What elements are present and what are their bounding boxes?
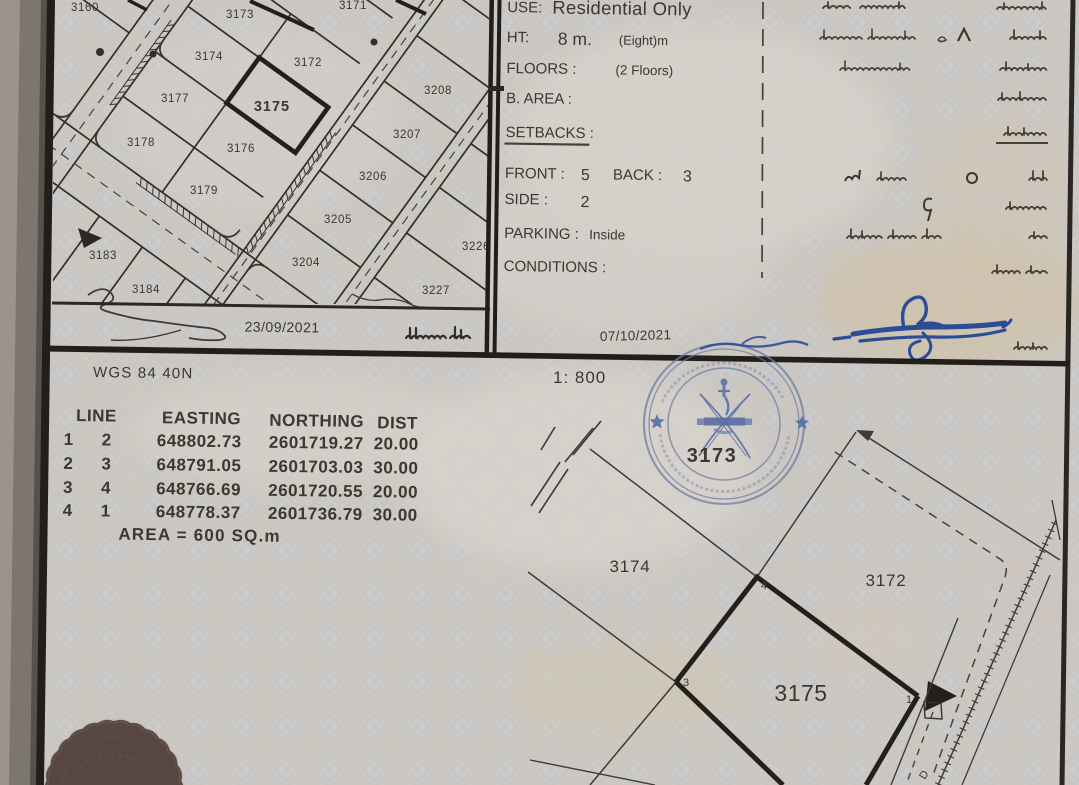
svg-text:4: 4 — [63, 501, 73, 520]
svg-text:648791.05: 648791.05 — [156, 455, 241, 475]
svg-text:3206: 3206 — [359, 171, 387, 183]
svg-text:648766.69: 648766.69 — [156, 479, 241, 499]
svg-text:23/09/2021: 23/09/2021 — [244, 318, 319, 335]
svg-text:20.00: 20.00 — [374, 434, 419, 454]
svg-text:3171: 3171 — [339, 0, 367, 12]
svg-text:CONDITIONS :: CONDITIONS : — [504, 258, 607, 276]
svg-text:FRONT :: FRONT : — [505, 165, 565, 183]
svg-text:4: 4 — [101, 478, 111, 497]
svg-text:USE:: USE: — [507, 0, 542, 16]
svg-text:648802.73: 648802.73 — [157, 431, 242, 451]
svg-text:20.00: 20.00 — [373, 482, 418, 502]
svg-text:LINE: LINE — [76, 406, 117, 426]
svg-text:3184: 3184 — [132, 284, 160, 296]
svg-text:WGS 84 40N: WGS 84 40N — [93, 364, 194, 382]
svg-text:3226: 3226 — [462, 241, 490, 253]
svg-text:2: 2 — [580, 194, 589, 211]
svg-text:3: 3 — [683, 677, 689, 689]
svg-text:1: 1 — [906, 694, 912, 706]
svg-text:EASTING: EASTING — [162, 408, 241, 428]
svg-text:3204: 3204 — [292, 257, 320, 269]
svg-text:3207: 3207 — [393, 129, 421, 141]
svg-text:PARKING :: PARKING : — [504, 225, 579, 243]
svg-text:AREA = 600 SQ.m: AREA = 600 SQ.m — [118, 525, 281, 546]
svg-text:8 m.: 8 m. — [558, 29, 592, 49]
svg-text:1: 1 — [64, 430, 74, 449]
svg-text:2: 2 — [102, 430, 112, 449]
svg-text:3177: 3177 — [161, 93, 189, 105]
svg-text:3160: 3160 — [71, 2, 99, 14]
svg-text:3: 3 — [101, 454, 111, 473]
svg-text:3172: 3172 — [294, 57, 322, 69]
svg-text:3175: 3175 — [254, 99, 290, 115]
svg-text:Inside: Inside — [589, 227, 625, 243]
svg-text:3208: 3208 — [424, 85, 452, 97]
svg-text:DIST: DIST — [377, 413, 418, 433]
svg-text:648778.37: 648778.37 — [156, 502, 241, 522]
svg-text:3205: 3205 — [324, 214, 352, 226]
svg-text:3173: 3173 — [226, 9, 254, 21]
svg-text:(Eight)m: (Eight)m — [619, 33, 668, 49]
svg-text:5: 5 — [581, 167, 590, 184]
svg-text:FLOORS :: FLOORS : — [506, 60, 576, 78]
svg-text:3: 3 — [683, 168, 692, 185]
svg-text:4: 4 — [761, 580, 767, 592]
svg-text:HT:: HT: — [507, 29, 530, 46]
svg-text:3: 3 — [63, 478, 73, 497]
svg-text:BACK :: BACK : — [613, 166, 662, 184]
svg-text:2601736.79: 2601736.79 — [268, 504, 363, 524]
svg-text:3227: 3227 — [422, 285, 450, 297]
svg-text:2601703.03: 2601703.03 — [268, 457, 363, 477]
svg-text:3183: 3183 — [89, 250, 117, 262]
svg-text:SIDE :: SIDE : — [504, 191, 548, 209]
svg-text:30.00: 30.00 — [373, 458, 418, 478]
svg-text:1: 1 — [101, 501, 111, 520]
svg-text:(2 Floors): (2 Floors) — [615, 62, 673, 78]
svg-text:3178: 3178 — [127, 137, 155, 149]
svg-text:3174: 3174 — [609, 557, 650, 576]
svg-text:3173: 3173 — [687, 445, 738, 467]
svg-text:3176: 3176 — [227, 143, 255, 155]
svg-text:3179: 3179 — [190, 185, 218, 197]
svg-text:Residential Only: Residential Only — [552, 0, 692, 20]
svg-text:3174: 3174 — [195, 51, 223, 63]
svg-text:30.00: 30.00 — [373, 505, 418, 525]
svg-text:2601720.55: 2601720.55 — [268, 481, 363, 501]
svg-text:NORTHING: NORTHING — [269, 411, 364, 431]
svg-text:3172: 3172 — [865, 571, 906, 590]
svg-text:SETBACKS :: SETBACKS : — [505, 124, 594, 142]
svg-text:2: 2 — [63, 454, 73, 473]
svg-text:1: 800: 1: 800 — [553, 368, 606, 387]
svg-text:2601719.27: 2601719.27 — [269, 433, 364, 453]
svg-text:3175: 3175 — [774, 680, 827, 706]
svg-text:07/10/2021: 07/10/2021 — [600, 327, 672, 344]
svg-text:B. AREA :: B. AREA : — [506, 90, 572, 108]
